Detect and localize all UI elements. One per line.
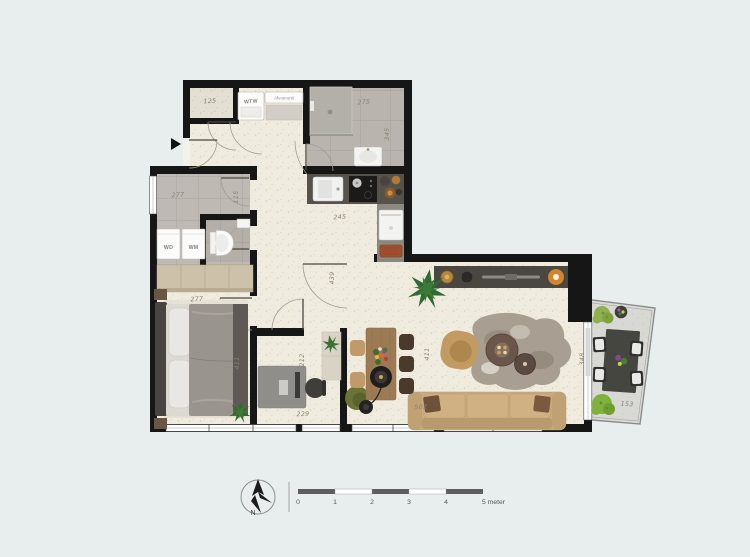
compass-n-label: N bbox=[250, 510, 255, 517]
dim-bathroom-h: 345 bbox=[384, 128, 391, 141]
washer-dryer bbox=[157, 229, 180, 259]
wm-label: WM bbox=[189, 245, 199, 251]
washing-machine bbox=[182, 229, 205, 259]
monitor bbox=[295, 372, 300, 398]
bedroom bbox=[154, 265, 253, 429]
scale-tick-1: 1 bbox=[333, 499, 337, 506]
scale-tick-4: 4 bbox=[444, 499, 448, 506]
keyboard bbox=[279, 380, 288, 395]
scale-bar: 0 1 2 3 4 5 meter bbox=[296, 489, 506, 506]
dim-living-h: 411 bbox=[424, 348, 431, 361]
dim-office-w: 229 bbox=[296, 411, 309, 418]
dim-bedroom-h: 411 bbox=[234, 357, 241, 370]
entrance-opening bbox=[183, 138, 190, 166]
tech-closet: WTW Afvoerunit bbox=[238, 92, 303, 120]
floor-plan-canvas: WTW Afvoerunit WD WM bbox=[0, 0, 750, 557]
legend: N 0 1 2 3 4 5 meter bbox=[241, 479, 506, 517]
dim-storage-h: 115 bbox=[233, 191, 240, 204]
wc-sink bbox=[237, 219, 250, 228]
scale-tick-2: 2 bbox=[370, 499, 374, 506]
nightstand-bottom bbox=[154, 418, 167, 429]
balcony-flower-pot-icon bbox=[615, 306, 628, 319]
dim-bathroom-w: 275 bbox=[357, 99, 370, 107]
wd-label: WD bbox=[164, 245, 173, 251]
slider-leaf bbox=[586, 328, 591, 376]
dim-storage-w: 277 bbox=[171, 192, 184, 199]
dim-bedroom-w: 277 bbox=[190, 296, 203, 304]
shower-head bbox=[310, 101, 314, 111]
dim-office-h: 212 bbox=[299, 354, 306, 367]
scale-tick-0: 0 bbox=[296, 499, 300, 506]
dim-balcony-w: 153 bbox=[620, 401, 633, 409]
afvoer-label: Afvoerunit bbox=[274, 96, 295, 101]
sofa bbox=[408, 392, 566, 430]
pillow-2 bbox=[169, 360, 190, 408]
compass-icon: N bbox=[241, 479, 275, 517]
dim-corridor: 439 bbox=[329, 272, 336, 285]
entrance-arrow-icon bbox=[171, 138, 181, 150]
shower-drain bbox=[328, 110, 333, 115]
scale-end-label: 5 meter bbox=[482, 499, 506, 506]
dim-balcony-h: 348 bbox=[579, 353, 586, 366]
cooktop bbox=[349, 176, 377, 202]
scale-tick-3: 3 bbox=[407, 499, 411, 506]
dim-living-w: 502 bbox=[414, 404, 427, 411]
dim-kitchen: 245 bbox=[333, 214, 346, 222]
wtw-label: WTW bbox=[244, 99, 258, 106]
nightstand-top bbox=[154, 289, 167, 300]
bed-headboard bbox=[155, 302, 167, 416]
pillow-1 bbox=[169, 308, 190, 356]
dim-closet: 125 bbox=[203, 98, 216, 106]
